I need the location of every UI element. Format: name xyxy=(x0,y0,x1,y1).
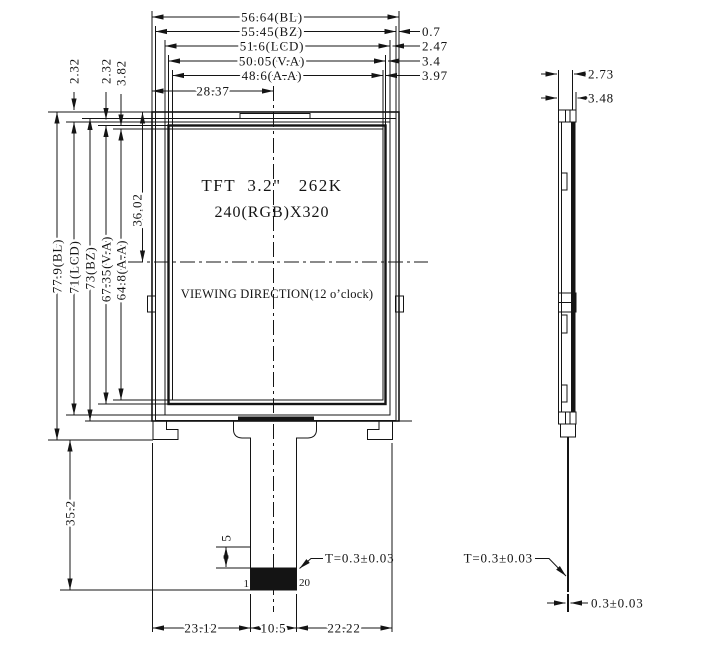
dim-outline-width: 56.64(BL) xyxy=(241,10,303,25)
right-bottom-tab xyxy=(368,421,393,440)
active-area-outline xyxy=(173,129,384,400)
side-clip-3 xyxy=(562,385,568,402)
dim-top-offset-2: 2.32 xyxy=(99,58,114,84)
tft-lcd-dimension-drawing: 56.64(BL) 55.45(BZ) 51.6(LCD) 50.05(V.A)… xyxy=(0,0,703,653)
left-dimensions: 77.9(BL) 71(LCD) 73(BZ) 67.35(V.A) 64.8(… xyxy=(48,112,173,440)
dim-va-width: 50.05(V.A) xyxy=(239,54,305,69)
dim-bezel-offset: 0.7 xyxy=(422,24,441,39)
dim-panel-thickness: 2.73 xyxy=(588,67,614,82)
top-tab xyxy=(240,114,310,119)
fpc-tail-right-edge xyxy=(297,421,317,568)
left-bottom-tab xyxy=(153,421,178,440)
dim-tail-length: 35.2 xyxy=(63,500,78,526)
dim-va-height: 67.35(V.A) xyxy=(99,236,114,302)
top-dimensions: 56.64(BL) 55.45(BZ) 51.6(LCD) 50.05(V.A)… xyxy=(152,10,399,130)
front-view-outline xyxy=(85,112,412,421)
side-clip-2 xyxy=(562,315,568,333)
dim-connector-width: 10.5 xyxy=(261,621,287,636)
dim-stiffener: 5 xyxy=(219,534,234,541)
screen-center-dimension: 36.02 xyxy=(130,112,145,262)
side-clip-1 xyxy=(562,173,568,190)
dim-screen-center: 36.02 xyxy=(130,193,145,226)
dim-total-thickness: 3.48 xyxy=(588,91,614,106)
dim-bottom-right: 22.22 xyxy=(327,621,360,636)
dim-fpc-thickness: 0.3±0.03 xyxy=(591,596,644,611)
side-view xyxy=(559,110,577,592)
dim-lcd-width: 51.6(LCD) xyxy=(240,39,305,54)
side-bottom-tab xyxy=(561,424,576,437)
dim-top-offset-3: 3.82 xyxy=(114,60,129,86)
display-resolution: 240(RGB)X320 xyxy=(214,204,329,221)
display-title: TFT 3.2" 262K xyxy=(201,176,342,195)
side-top-cap xyxy=(559,110,577,122)
fpc-thickness-note: T=0.3±0.03 xyxy=(325,551,394,566)
dim-bezel-height: 73(BZ) xyxy=(83,246,98,289)
dim-center-offset: 28.37 xyxy=(196,84,229,99)
dim-aa-height: 64.8(A.A) xyxy=(114,240,129,301)
dim-va-offset: 3.4 xyxy=(422,54,441,69)
side-bottom-cap xyxy=(559,412,577,424)
pin-1-label: 1 xyxy=(244,578,250,590)
bezel-outline xyxy=(156,119,397,421)
lcd-outline xyxy=(165,122,390,415)
fpc-tail-left-edge xyxy=(234,421,251,568)
bottom-dimensions: 23.12 10.5 22.22 xyxy=(153,443,393,636)
viewing-area-outline xyxy=(169,126,386,405)
backlight-outline xyxy=(152,112,399,421)
side-glass-stack xyxy=(572,122,576,412)
dim-lcd-height: 71(LCD) xyxy=(67,240,82,293)
top-left-offset-dimensions: 2.32 2.32 3.82 xyxy=(67,58,129,126)
dim-lcd-offset: 2.47 xyxy=(422,39,448,54)
dim-aa-offset: 3.97 xyxy=(422,68,448,83)
drawing-canvas: 56.64(BL) 55.45(BZ) 51.6(LCD) 50.05(V.A)… xyxy=(0,0,703,653)
pin-20-label: 20 xyxy=(299,577,311,589)
dim-bezel-width: 55.45(BZ) xyxy=(241,24,303,39)
top-right-offset-dimensions: 0.7 2.47 3.4 3.97 xyxy=(386,24,448,83)
viewing-direction-note: VIEWING DIRECTION(12 o’clock) xyxy=(181,287,374,301)
dim-aa-width: 48.6(A.A) xyxy=(242,68,303,83)
side-fpc-thickness-note: T=0.3±0.03 xyxy=(464,551,533,566)
dim-top-offset-1: 2.32 xyxy=(67,58,82,84)
dim-outline-height: 77.9(BL) xyxy=(50,239,65,293)
dim-bottom-left: 23.12 xyxy=(184,621,217,636)
side-view-dimensions: 2.73 3.48 T=0.3±0.03 0.3±0.03 xyxy=(464,67,644,613)
stiffener-dimension: 5 1 20 T=0.3±0.03 xyxy=(216,534,394,590)
